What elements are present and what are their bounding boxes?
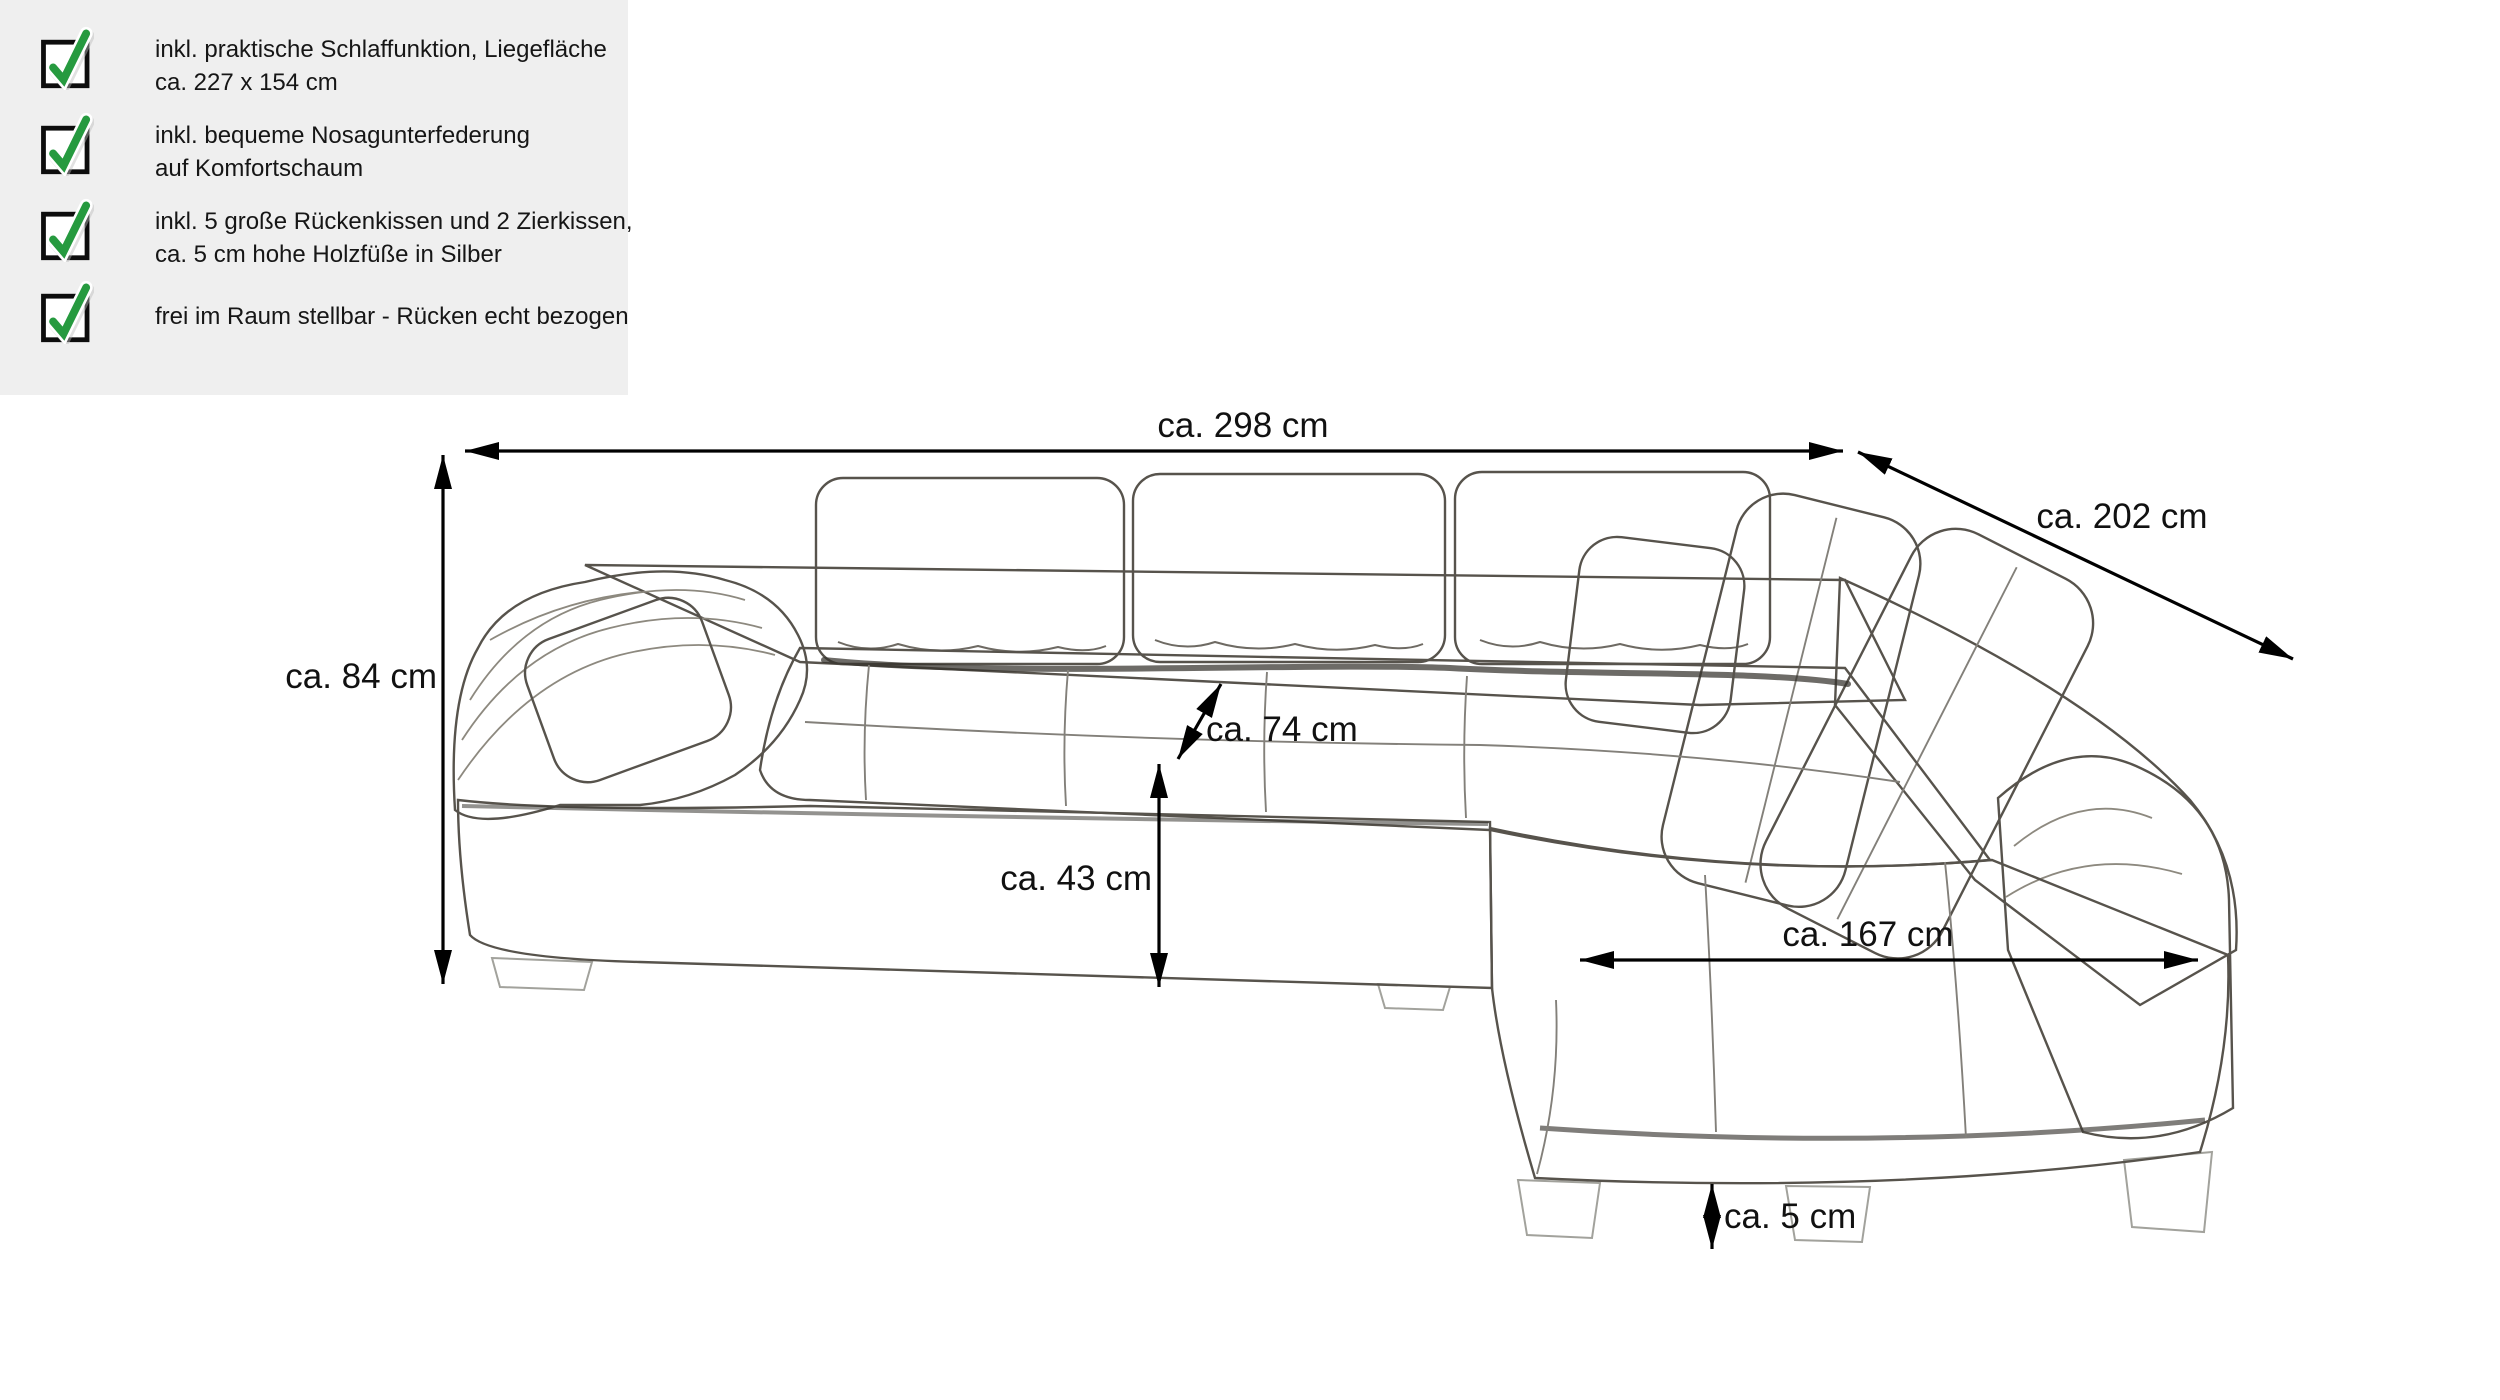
sofa-foot-left (492, 958, 592, 990)
dimension-line-depth-right (1858, 452, 2293, 659)
chaise-longue (1490, 828, 2228, 1183)
dimension-label-backrest-height: ca. 74 cm (1206, 710, 1358, 749)
dimension-label-back-height: ca. 84 cm (285, 657, 437, 696)
back-cushion-3 (1455, 472, 1770, 664)
dimension-label-seat-height: ca. 43 cm (1000, 859, 1152, 898)
corner-back-cushion-1 (1651, 483, 1930, 917)
back-cushion-2 (1133, 474, 1445, 662)
sofa-foot-mid (1378, 984, 1450, 1010)
dimension-label-total-width: ca. 298 cm (1157, 406, 1328, 445)
dimension-label-feet-height: ca. 5 cm (1724, 1197, 1856, 1236)
dimension-label-depth-right: ca. 202 cm (2036, 497, 2207, 536)
dimension-annotations: ca. 298 cm ca. 202 cm ca. 84 cm ca. 74 c… (285, 406, 2293, 1249)
sofa-dimension-drawing: ca. 298 cm ca. 202 cm ca. 84 cm ca. 74 c… (0, 0, 2500, 1400)
sofa-drawing (454, 472, 2237, 1242)
chaise-foot-end (2124, 1152, 2212, 1232)
product-dimension-image: inkl. praktische Schlaffunktion, Liegefl… (0, 0, 2500, 1400)
dimension-label-chaise-length: ca. 167 cm (1782, 915, 1953, 954)
bench-base (458, 800, 1492, 988)
armrest-right (1998, 756, 2233, 1138)
chaise-foot-left (1518, 1180, 1600, 1238)
deco-pillow-corner (1561, 533, 1748, 738)
